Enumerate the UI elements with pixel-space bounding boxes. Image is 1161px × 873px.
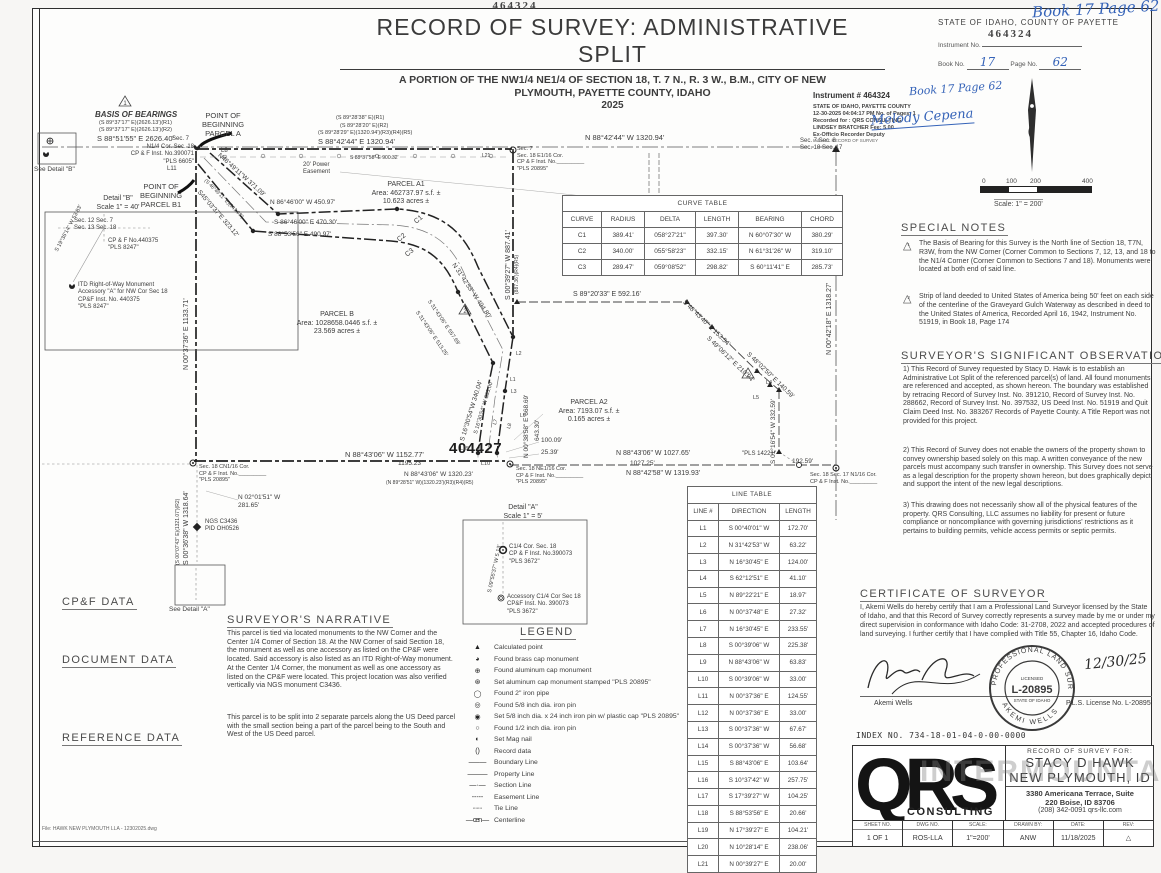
n14-corner-label: N1/4 Cor. Sec. 18 CP & F Inst. No.390071…: [116, 144, 194, 166]
sec7-label: Sec. 7: [172, 136, 189, 143]
legend-symbol-icon: — ——: [460, 771, 494, 778]
line-table-row: L6N 00°37'48" E27.32': [688, 604, 817, 621]
special-note-2: Strip of land deeded to United States of…: [919, 293, 1157, 328]
line-label-l3: L3: [511, 389, 517, 395]
see-detail-a-label: See Detail "A": [169, 606, 210, 614]
detail-b-itd-label: ITD Right-of-Way Monument Accessory "A" …: [78, 282, 168, 311]
svg-text:LICENSED: LICENSED: [1021, 676, 1044, 681]
legend-item: ◉ Set 5/8 inch dia. x 24 inch iron pin w…: [460, 711, 695, 723]
observation-1: 1) This Record of Survey requested by St…: [903, 366, 1155, 426]
reference-data-heading: REFERENCE DATA: [62, 732, 182, 746]
line-table-row: L7N 16°30'45" E233.55': [688, 621, 817, 638]
detail-b-sections: Sec. 12 Sec. 7 Sec. 13 Sec. 18: [74, 218, 116, 233]
page-no-value: 62: [1039, 55, 1081, 70]
legend-item: ( ) Record data: [460, 746, 695, 758]
detail-a-c14-label: C1/4 Cor. Sec. 18 CP & F Inst. No.390073…: [509, 544, 572, 566]
legend-symbol-icon: ▲: [460, 644, 494, 651]
bearing-bot-1320: N 88°43'06" W 1320.23': [404, 471, 473, 479]
detail-b-title: Detail "B" Scale 1" = 40': [76, 195, 160, 212]
legend-symbol-icon: ⊕: [460, 667, 494, 675]
scale-tick-0: 0: [982, 178, 986, 185]
sheet-header: RECORD OF SURVEY: ADMINISTRATIVE SPLIT A…: [340, 14, 885, 111]
basis-of-bearings-label: BASIS OF BEARINGS: [95, 110, 177, 120]
scale-tick-100: 100: [1006, 178, 1017, 185]
top-record-2: (S 89°28'20" E)(R2): [340, 123, 388, 130]
legend-item-label: Found brass cap monument: [494, 656, 579, 663]
title-block-cell: SHEET NO. 1 OF 1: [853, 821, 903, 846]
legend-symbol-icon: ○: [460, 725, 494, 732]
bearing-s8646: S 86°46'00" E 470.30': [274, 219, 337, 227]
legend-item: — —— Property Line: [460, 769, 695, 781]
page-no-label: Page No.: [1010, 61, 1037, 68]
basis-record-1: (S 89°37'17" E)(2626.13')(R1): [99, 120, 172, 127]
scale-tick-200: 200: [1030, 178, 1041, 185]
note-1-number: 1: [908, 242, 911, 247]
note-2-number: 2: [908, 295, 911, 300]
scale-label: Scale: 1" = 200': [994, 199, 1043, 208]
observation-3: 3) This drawing does not necessarily sho…: [903, 502, 1155, 536]
legend-item: ◐ Set Mag nail: [460, 734, 695, 746]
recorder-stamp: Instrument # 464324 Book 17 Page 62 STAT…: [813, 84, 1013, 144]
pob-parcel-a-label: POINT OF BEGINNING PARCEL A: [196, 111, 250, 138]
basis-measured-bearing: S 88°51'55" E 2626.40': [97, 134, 174, 143]
line-label-l5: L5: [753, 395, 759, 402]
parcel-a2-label: PARCEL A2 Area: 7193.07 s.f. ± 0.165 acr…: [538, 399, 640, 425]
top-measured-bearing: S 88°42'44" E 1320.94': [318, 137, 395, 146]
pls14221-label: "PLS 14221": [742, 451, 776, 458]
record-of-survey-sheet: { "sheet": { "instrument_top": "464324" …: [0, 0, 1161, 852]
bearing-n0037: N 00°37'36" E 1133.71': [183, 298, 192, 370]
curve-table-row: C3289.47'059°08'52" 298.82'S 60°11'41" E…: [563, 260, 843, 276]
legend-symbol-icon: — cen —: [460, 817, 494, 824]
legend-item-label: Easement Line: [494, 794, 539, 801]
legend-item: ◕ Found brass cap monument: [460, 654, 695, 666]
basis-record-2: (S 89°37'17" E)(2626.13')(R2): [99, 127, 172, 134]
page-subtitle-2: PLYMOUTH, PAYETTE COUNTY, IDAHO: [340, 87, 885, 99]
line-label-l15: L15: [460, 446, 469, 453]
detail-b-cpf: CP & F No.440375 "PLS 8247": [108, 238, 158, 253]
ngs-monument-label: NGS C3436 PID OH0526: [205, 519, 239, 534]
scale-bar: 0 100 200 400 Scale: 1" = 200': [980, 178, 1110, 211]
recorder-line-6: Ex-Officio Recorder Deputy: [813, 132, 1013, 139]
legend-symbol-icon: ·······: [460, 805, 494, 812]
north-arrow-icon: [1012, 76, 1052, 176]
legend-item-label: Found 2" iron pipe: [494, 690, 549, 697]
line-label-l6: L6: [520, 413, 526, 419]
legend-symbol-icon: ◎: [460, 701, 494, 709]
line-label-l11: L11: [167, 166, 177, 173]
legend-item: — cen — Centerline: [460, 815, 695, 827]
bearing-n0038: N 00°38'58" E 668.69': [523, 395, 531, 458]
line-label-l10: L10: [481, 461, 490, 468]
line-table-row: L20N 10°28'14" E238.06': [688, 839, 817, 856]
line-table-row: L9N 88°43'06" W63.83': [688, 654, 817, 671]
ohe-bearing: S 88°37'58" E 900.32': [350, 155, 399, 161]
legend-item-label: Section Line: [494, 782, 531, 789]
line-table-title: LINE TABLE: [688, 487, 817, 504]
legend-symbol-icon: ◕: [460, 656, 494, 663]
curve-table-row: C1389.41'058°27'21" 397.30'N 60°07'30" W…: [563, 228, 843, 244]
legend-item: ◎ Found 5/8 inch dia. iron pin: [460, 700, 695, 712]
legend-item: ⊛ Set aluminum cap monument stamped "PLS…: [460, 677, 695, 689]
intermountain-watermark: INTERMOUNTAIN: [920, 755, 1161, 789]
legend-item-label: Found 1/2 inch dia. iron pin: [494, 725, 576, 732]
legend-item-label: Property Line: [494, 771, 534, 778]
line-table-row: L2N 31°42'53" W63.22': [688, 537, 817, 554]
narrative-heading: SURVEYOR'S NARRATIVE: [227, 614, 393, 628]
cn116-corner-label: Sec. 18 CN1/16 Cor. CP & F Inst. No.____…: [199, 464, 266, 484]
page-title: RECORD OF SURVEY: ADMINISTRATIVE SPLIT: [340, 14, 885, 70]
legend-symbol-icon: ◐: [460, 736, 494, 743]
bearing-s0039-record: (887.36')(R4)(R5): [514, 255, 520, 294]
line-table-row: L18S 88°53'56" E20.66': [688, 805, 817, 822]
line-table-row: L3N 16°30'45" E124.00': [688, 554, 817, 571]
instrument-number-top: 464324: [460, 0, 570, 12]
legend-heading: LEGEND: [520, 626, 576, 640]
bearing-s8853: S 88°53'56" E 490.97': [268, 231, 331, 239]
title-block-cell: DRAWN BY: ANW: [1004, 821, 1054, 846]
detail-a-title: Detail "A" Scale 1" = 5': [487, 504, 559, 521]
curve-table-row: C2340.00'055°58'23" 332.15'N 61°31'26" W…: [563, 244, 843, 260]
bearing-s0036-record: (S 00°07'43" E)(1321.07')(R2): [175, 499, 181, 565]
line-label-l1: L1: [510, 377, 516, 383]
special-notes-heading: SPECIAL NOTES: [901, 222, 1008, 236]
legend-item-label: Found 5/8 inch dia. iron pin: [494, 702, 576, 709]
legend-item: ⊕ Found aluminum cap monument: [460, 665, 695, 677]
surveyor-signature: [862, 648, 992, 700]
top-record-345: (S 89°28'29" E)(1320.94')(R3)(R4)(R5): [318, 130, 412, 137]
line-table-row: L8S 00°39'06" W225.38': [688, 638, 817, 655]
narrative-paragraph-1: This parcel is tied via located monument…: [227, 630, 455, 691]
n116-sec17-corner-label: Sec. 18 Sec. 17 N1/16 Cor. CP & F Inst. …: [810, 472, 877, 485]
recorder-instrument-line: Instrument # 464324: [813, 91, 890, 100]
e116-corner-label: Sec. 7 Sec. 18 E1/16 Cor. CP & F Inst. N…: [517, 146, 584, 173]
firm-address-1: 3380 Americana Terrace, Suite: [1006, 789, 1154, 798]
record-for-label: RECORD OF SURVEY FOR:: [1006, 748, 1154, 755]
legend-item-label: Set aluminum cap monument stamped "PLS 2…: [494, 679, 651, 686]
legend-item: ◯ Found 2" iron pipe: [460, 688, 695, 700]
line-table-row: L15S 88°43'06" E103.64': [688, 755, 817, 772]
legend-item-label: Boundary Line: [494, 759, 538, 766]
line-label-l21: L21: [482, 153, 490, 159]
recorder-line-7: Index to: RECORD OF SURVEY: [813, 138, 1013, 144]
line-table-row: L19N 17°39'27" E104.21': [688, 822, 817, 839]
curve-table-title: CURVE TABLE: [563, 196, 843, 212]
dist-10009: 100.09': [541, 437, 562, 445]
line-table-row: L16S 10°37'42" W257.75': [688, 772, 817, 789]
bearing-bot-1319: N 88°42'58" W 1319.93': [626, 470, 700, 479]
ne116-corner-label: Sec. 18 NE1/16 Cor. CP & F Inst. No.____…: [516, 466, 583, 486]
legend-list: ▲ Calculated point ◕ Found brass cap mon…: [460, 642, 695, 826]
bearing-n0042: N 00°42'18" E 1318.27': [826, 283, 835, 355]
bearing-s0036: S 00°36'38" W 1318.64': [183, 491, 192, 565]
legend-symbol-icon: ⊛: [460, 678, 494, 686]
power-easement-label: 20' Power Easement: [303, 162, 330, 177]
parcel-a1-label: PARCEL A1 Area: 462737.97 s.f. ± 10.623 …: [350, 181, 462, 207]
scale-tick-400: 400: [1082, 178, 1093, 185]
book-no-value: 17: [967, 55, 1009, 70]
legend-item: — – — Boundary Line: [460, 757, 695, 769]
bearing-s8920: S 89°20'33" E 592.16': [573, 291, 641, 300]
page-subtitle-1: A PORTION OF THE NW1/4 NE1/4 OF SECTION …: [340, 74, 885, 86]
svg-text:L-20895: L-20895: [1012, 684, 1053, 696]
special-note-1: The Basis of Bearing for this Survey is …: [919, 240, 1157, 275]
book-no-label: Book No.: [938, 61, 965, 68]
legend-symbol-icon: ◯: [460, 690, 494, 698]
legend-item-label: Set 5/8 inch dia. x 24 inch iron pin w/ …: [494, 713, 679, 720]
dist-2539: 25.39': [541, 449, 559, 457]
line-table-row: L4S 62°12'51" E41.10': [688, 570, 817, 587]
legend-item-label: Calculated point: [494, 644, 543, 651]
document-data-heading: DOCUMENT DATA: [62, 654, 176, 668]
legend-item: ······· Tie Line: [460, 803, 695, 815]
pls-license-line: P.L.S. License No. L-20895: [1066, 700, 1151, 707]
observation-2: 2) This Record of Survey does not enable…: [903, 447, 1155, 490]
line-table-row: L12N 00°37'36" E33.00': [688, 705, 817, 722]
certificate-body: I, Akemi Wells do hereby certify that I …: [860, 603, 1155, 639]
qrs-consulting-label: CONSULTING: [907, 806, 994, 818]
legend-symbol-icon: ◉: [460, 713, 494, 721]
title-block-cell: DWG NO. ROS-LLA: [903, 821, 953, 846]
line-table-row: L5N 89°22'21" E18.97': [688, 587, 817, 604]
detail-a-accessory-label: Accessory C1/4 Cor Sec 18 CP&F Inst. No.…: [507, 594, 581, 616]
legend-item: - - - - - Easement Line: [460, 792, 695, 804]
instrument-no-label: Instrument No.: [938, 42, 981, 49]
legend-item: ▲ Calculated point: [460, 642, 695, 654]
surveyor-name-label: Akemi Wells: [874, 700, 912, 707]
legend-item: ○ Found 1/2 inch dia. iron pin: [460, 723, 695, 735]
bearing-n0201: N 02°01'51" W 281.65': [238, 494, 280, 510]
certificate-heading: CERTIFICATE OF SURVEYOR: [860, 588, 1048, 602]
legend-symbol-icon: — · —: [460, 782, 494, 789]
top-right-bearing: N 88°42'44" W 1320.94': [585, 133, 664, 142]
svg-text:STATE OF IDAHO: STATE OF IDAHO: [1014, 698, 1051, 703]
legend-symbol-icon: ( ): [460, 748, 494, 755]
line-table-row: L13S 00°37'36" W67.67': [688, 721, 817, 738]
see-detail-b-label: See Detail "B": [34, 166, 75, 174]
bearing-bot-1152: N 88°43'06" W 1152.77': [345, 450, 424, 459]
line-table-row: L10S 00°39'06" W33.00': [688, 671, 817, 688]
dist-119523: 1195.23': [398, 460, 422, 468]
firm-address-3: (208) 342-0091 qrs-llc.com: [1006, 807, 1154, 814]
map-instrument-stamp: 404427: [449, 440, 502, 458]
title-block-cell: SCALE: 1"=200': [953, 821, 1003, 846]
legend-item-label: Record data: [494, 748, 531, 755]
title-block-cell: DATE: 11/18/2025: [1054, 821, 1104, 846]
dist-102725: 1027.25': [630, 460, 655, 468]
county-state-line: STATE OF IDAHO, COUNTY OF PAYETTE: [938, 18, 1152, 27]
title-block-cell: REV: △: [1104, 821, 1153, 846]
line-table-row: L14S 00°37'36" W56.68': [688, 738, 817, 755]
bearing-s0039: S 00°39'27" W 887.41': [505, 230, 514, 300]
line-table-row: L11N 00°37'36" E124.55': [688, 688, 817, 705]
county-stamp-number: 464324: [988, 28, 1152, 40]
line-table-row: L17S 17°39'27" W104.25': [688, 789, 817, 806]
legend-item-label: Centerline: [494, 817, 525, 824]
line-table-row: L21N 00°39'27" E20.00': [688, 856, 817, 873]
line-label-l2: L2: [516, 351, 522, 357]
bearing-bot-record: (N 89°28'51" W)(1320.23')(R3)(R4)(R5): [386, 480, 473, 486]
bearing-bot-1027: N 88°43'06" W 1027.65': [616, 450, 690, 459]
observations-heading: SURVEYOR'S SIGNIFICANT OBSERVATIONS: [901, 350, 1161, 364]
line-table: LINE TABLE LINE # DIRECTION LENGTH L1S 0…: [687, 486, 817, 873]
county-recording-block: STATE OF IDAHO, COUNTY OF PAYETTE 464324…: [938, 18, 1152, 70]
index-number: INDEX NO. 734-18-01-04-0-00-0000: [856, 731, 1026, 740]
curve-table: CURVE TABLE CURVE RADIUS DELTA LENGTH BE…: [562, 195, 843, 276]
cpf-data-heading: CP&F DATA: [62, 596, 137, 610]
legend-item-label: Found aluminum cap monument: [494, 667, 591, 674]
survey-year: 2025: [340, 100, 885, 111]
legend-item: — · — Section Line: [460, 780, 695, 792]
legend-item-label: Set Mag nail: [494, 736, 532, 743]
legend-item-label: Tie Line: [494, 805, 518, 812]
legend-symbol-icon: — – —: [460, 759, 494, 766]
parcel-b-label: PARCEL B Area: 1028658.0446 s.f. ± 23.56…: [276, 311, 398, 337]
line-table-row: L1S 00°40'01" W172.70': [688, 520, 817, 537]
dist-19259: 192.59': [792, 458, 813, 466]
surveyor-seal: PROFESSIONAL LAND SURVEYOR AKEMI WELLS L…: [988, 644, 1076, 732]
firm-address-2: 220 Boise, ID 83706: [1006, 798, 1154, 807]
narrative-paragraph-2: This parcel is to be split into 2 separa…: [227, 714, 455, 740]
legend-symbol-icon: - - - - -: [460, 794, 494, 801]
file-note: File: HAWK NEW PLYMOUTH LLA - 12302025.d…: [42, 826, 157, 832]
top-record-1: (S 89°28'38" E)(R1): [336, 115, 384, 122]
bearing-n8646: N 86°46'00" W 450.97': [270, 199, 335, 207]
